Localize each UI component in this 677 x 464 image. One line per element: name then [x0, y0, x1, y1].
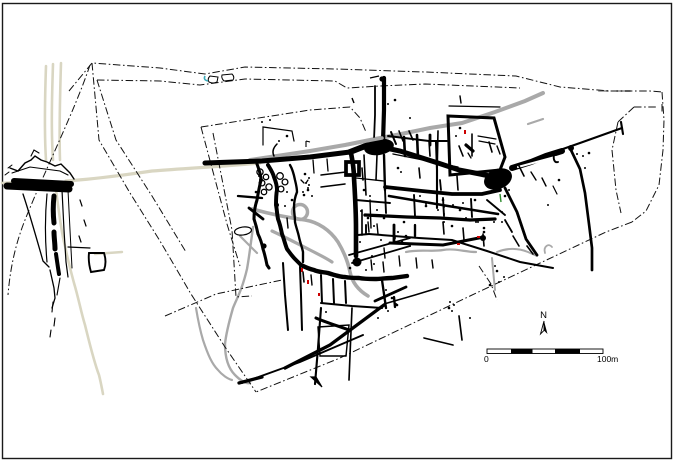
svg-text:N: N: [540, 310, 547, 321]
svg-text:100m: 100m: [597, 354, 618, 364]
svg-text:0: 0: [484, 354, 489, 364]
